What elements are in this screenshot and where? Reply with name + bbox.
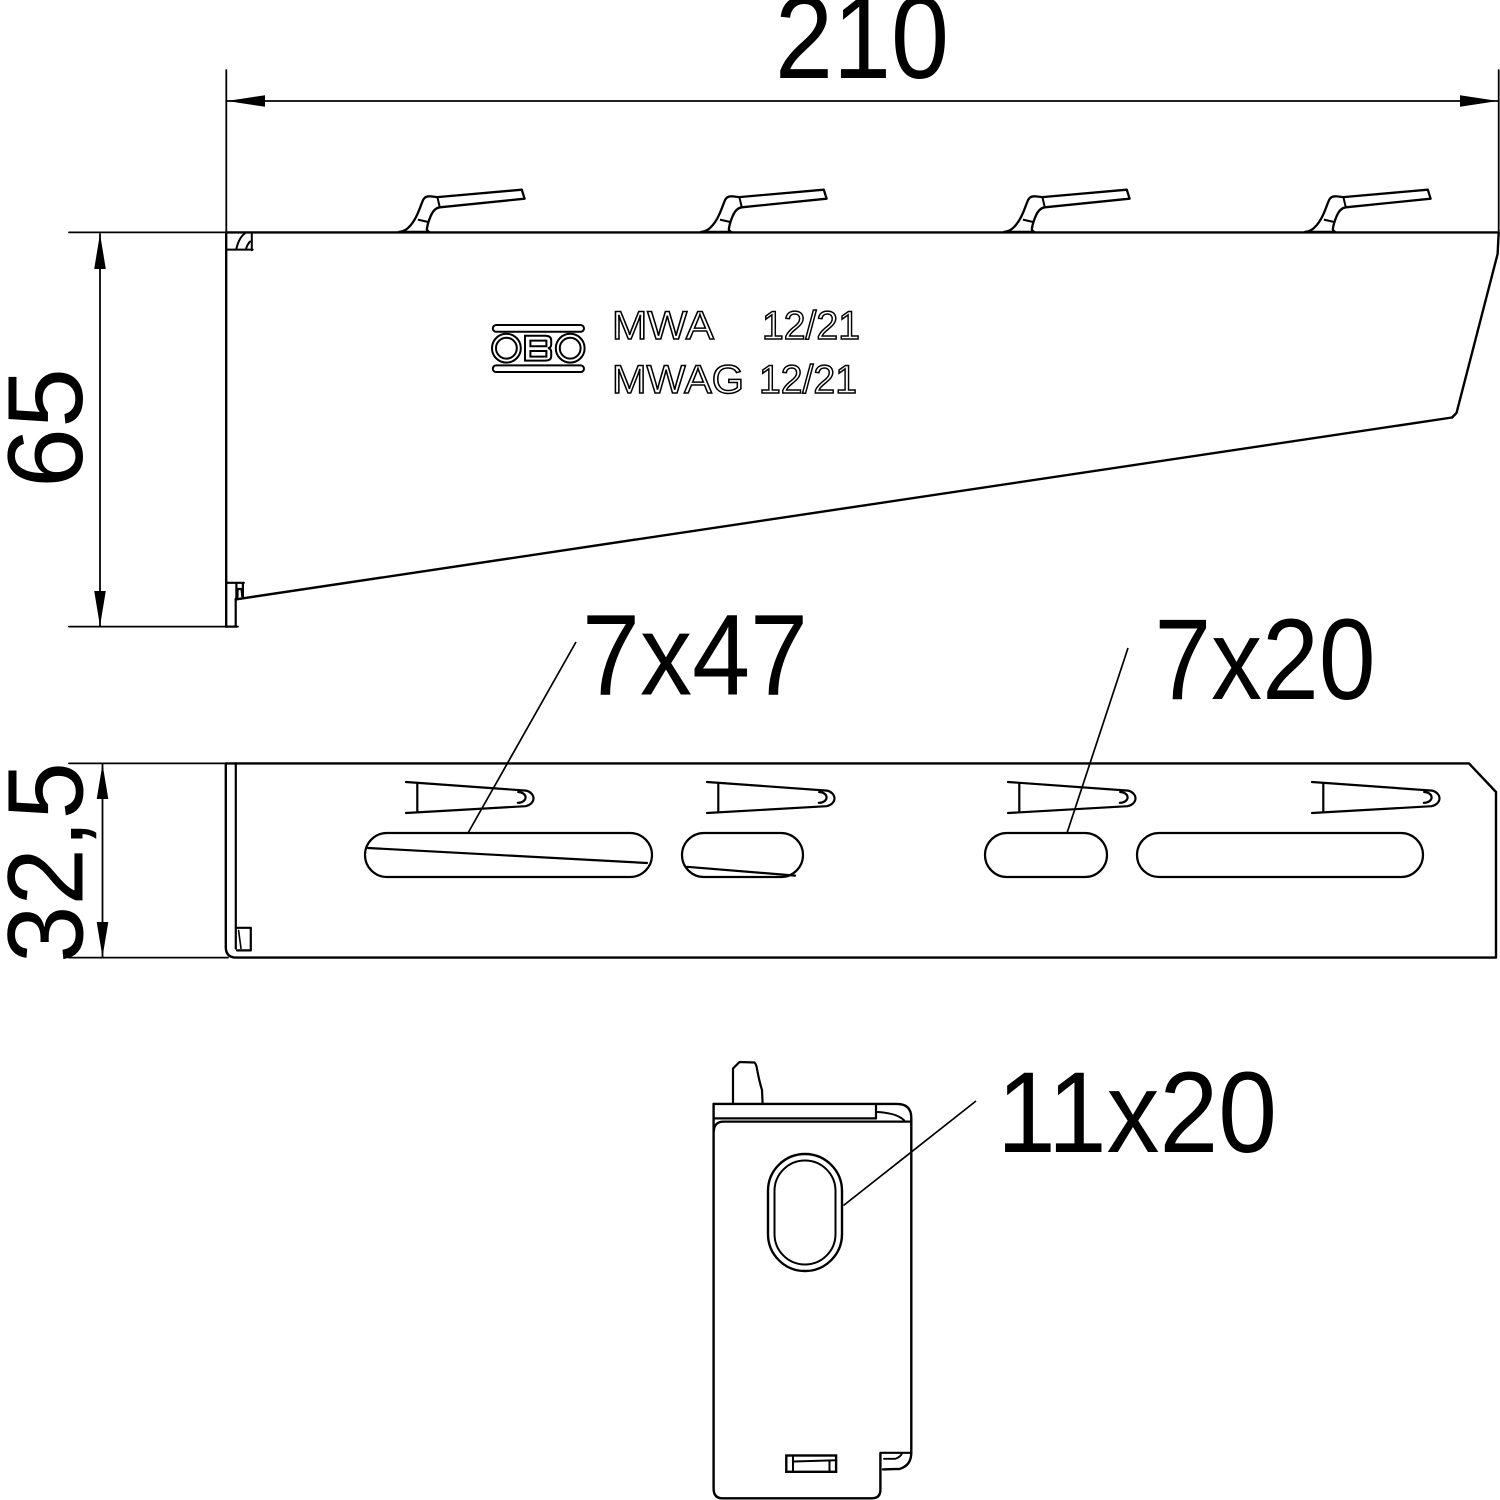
svg-text:MWAG: MWAG (612, 358, 744, 402)
svg-text:12/21: 12/21 (762, 304, 860, 348)
svg-text:12/21: 12/21 (759, 358, 857, 402)
svg-text:7x47: 7x47 (582, 592, 808, 720)
svg-text:11x20: 11x20 (997, 1049, 1277, 1177)
svg-text:210: 210 (775, 0, 949, 104)
svg-text:32,5: 32,5 (0, 762, 106, 963)
svg-text:7x20: 7x20 (1155, 596, 1376, 724)
svg-text:MWA: MWA (612, 304, 714, 348)
svg-text:65: 65 (0, 368, 105, 488)
